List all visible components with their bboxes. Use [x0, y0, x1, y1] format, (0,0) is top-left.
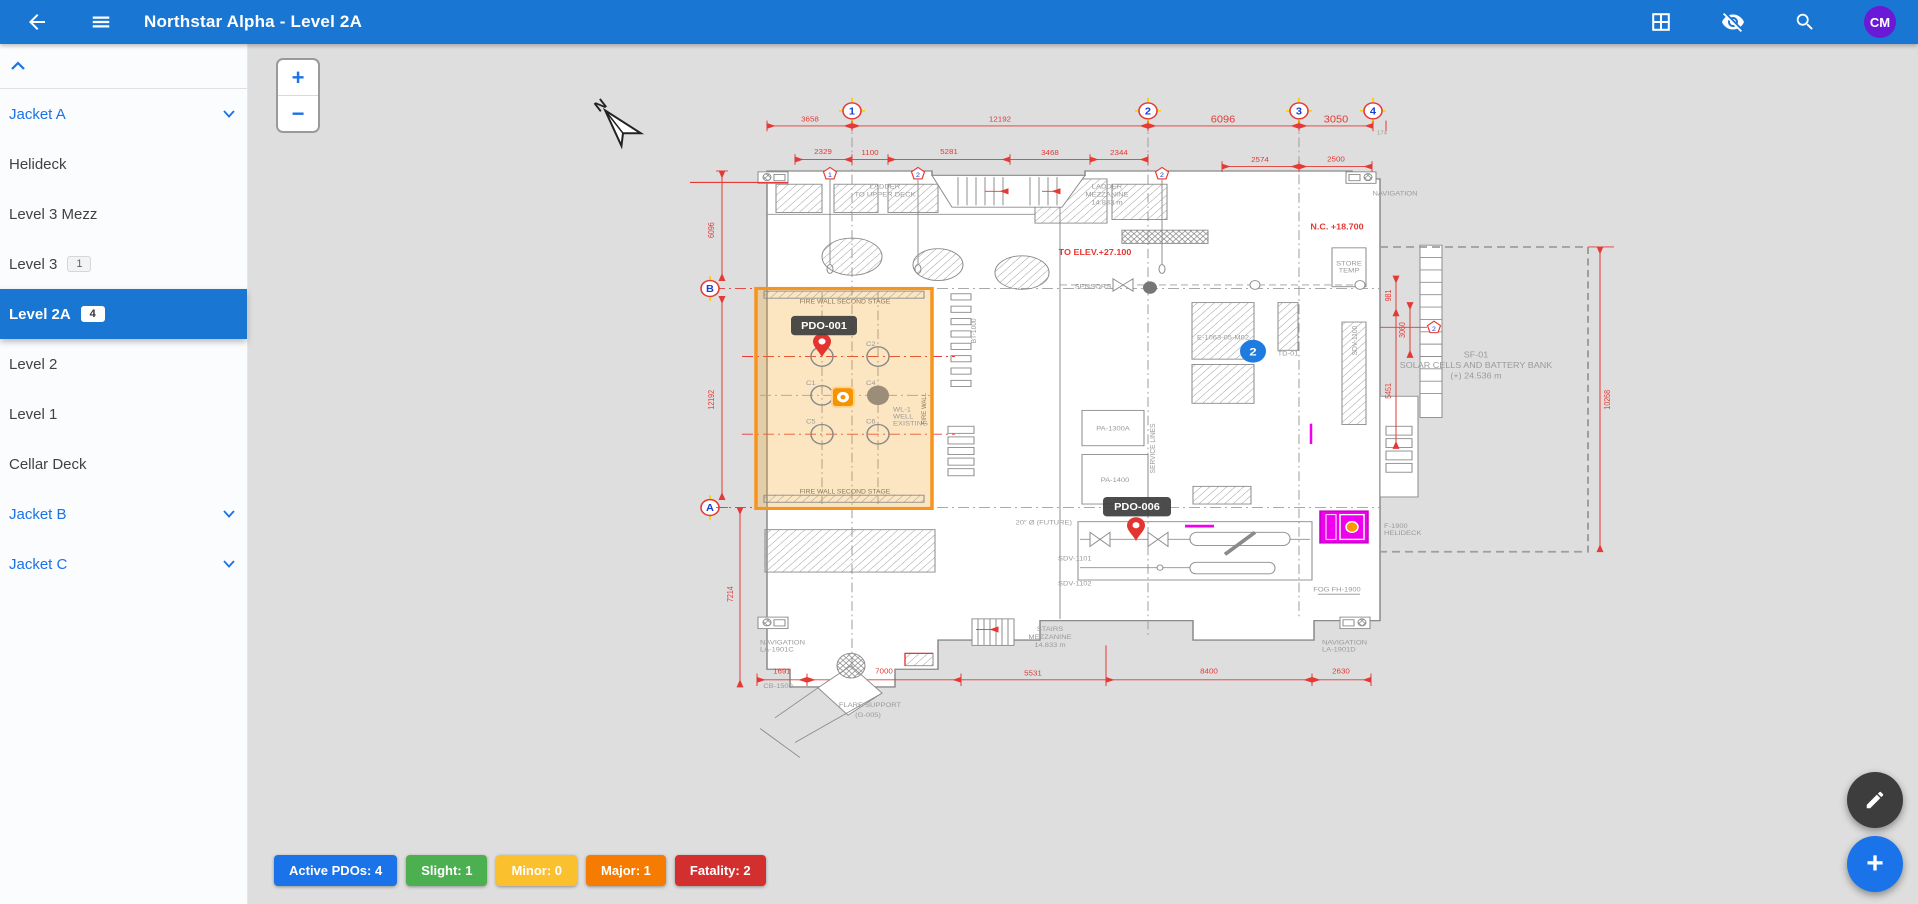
sidebar-item-label: Level 3: [9, 256, 57, 273]
svg-text:HELIDECK: HELIDECK: [1384, 530, 1422, 537]
svg-text:A: A: [706, 504, 714, 514]
grid-bubble-4: 4: [1360, 98, 1386, 125]
chip-major[interactable]: Major: 1: [586, 855, 666, 886]
sidebar-item-label: Level 3 Mezz: [9, 206, 97, 223]
sidebar-collapse-button[interactable]: [0, 44, 247, 88]
sidebar-item-label: Cellar Deck: [9, 456, 87, 473]
chip-minor[interactable]: Minor: 0: [496, 855, 577, 886]
search-button[interactable]: [1792, 9, 1818, 35]
table-view-button[interactable]: [1648, 9, 1674, 35]
edit-fab[interactable]: [1847, 772, 1903, 828]
status-chip-bar: Active PDOs: 4 Slight: 1 Minor: 0 Major:…: [274, 855, 766, 886]
svg-text:F-1900: F-1900: [1384, 523, 1408, 530]
equipment-label: PA-1400: [1101, 477, 1130, 484]
dim-label: 5281: [940, 148, 958, 156]
sidebar-item-label: Jacket B: [9, 506, 67, 523]
sidebar-item-label: Jacket A: [9, 106, 66, 123]
dim-label: 981: [1384, 290, 1394, 302]
svg-text:LADDER: LADDER: [1092, 184, 1122, 191]
svg-text:1: 1: [849, 107, 855, 117]
svg-text:2: 2: [1160, 172, 1164, 179]
zoom-out-button[interactable]: −: [278, 96, 318, 131]
pencil-icon: [1864, 789, 1886, 811]
toggle-visibility-button[interactable]: [1720, 9, 1746, 35]
svg-text:14.833 m: 14.833 m: [1091, 200, 1122, 207]
svg-text:1: 1: [828, 172, 832, 179]
hamburger-icon: [90, 11, 112, 33]
svg-text:2: 2: [916, 172, 920, 179]
navigation-light-box: [1340, 617, 1370, 628]
equipment-label: BT-1000: [971, 318, 978, 343]
svg-text:WL-1: WL-1: [893, 407, 911, 414]
chip-fatality[interactable]: Fatality: 2: [675, 855, 766, 886]
chip-active-pdos[interactable]: Active PDOs: 4: [274, 855, 397, 886]
equipment-label: E-1063-05-M02: [1197, 335, 1249, 342]
north-arrow: N: [580, 88, 650, 158]
dim-label: 3658: [801, 115, 819, 123]
sidebar-item-label: Jacket C: [9, 556, 67, 573]
svg-text:FOG FH-1900: FOG FH-1900: [1313, 587, 1360, 594]
navigation-light-box: [758, 617, 788, 628]
search-icon: [1794, 11, 1816, 33]
svg-text:C6: C6: [866, 419, 876, 426]
equipment-label: PA-1300A: [1096, 426, 1130, 433]
dim-label: 2574: [1251, 156, 1269, 164]
equipment-label: SDV-1102: [1058, 581, 1092, 588]
svg-text:2: 2: [1432, 326, 1436, 333]
grid-icon: [1650, 11, 1672, 33]
svg-text:FIRE WALL: FIRE WALL: [921, 392, 928, 424]
arrow-left-icon: [25, 10, 49, 34]
svg-text:LA-1901D: LA-1901D: [1322, 647, 1356, 654]
svg-text:FIRE WALL SECOND STAGE: FIRE WALL SECOND STAGE: [800, 489, 891, 496]
svg-text:FIRE WALL SECOND STAGE: FIRE WALL SECOND STAGE: [800, 299, 891, 306]
sidebar-item-cellar-deck[interactable]: Cellar Deck: [0, 439, 247, 489]
svg-text:STORE: STORE: [1336, 261, 1362, 268]
equipment-label: TD-01: [1278, 351, 1299, 358]
sidebar-item-label: Level 2A: [9, 306, 71, 323]
chevron-up-icon: [9, 59, 27, 73]
eye-off-icon: [1721, 10, 1745, 34]
dim-label: 1691: [773, 667, 791, 675]
svg-text:FLARE SUPPORT: FLARE SUPPORT: [839, 703, 902, 710]
zoom-in-button[interactable]: +: [278, 60, 318, 96]
levels-sidebar: Jacket A Helideck Level 3 Mezz Level 3 1…: [0, 44, 248, 904]
app-bar: Northstar Alpha - Level 2A CM: [0, 0, 1918, 44]
plus-icon: +: [1866, 847, 1884, 881]
svg-text:MEZZANINE: MEZZANINE: [1085, 192, 1129, 199]
svg-text:(G-005): (G-005): [855, 712, 881, 719]
svg-text:MEZZANINE: MEZZANINE: [1028, 635, 1072, 642]
chevron-down-icon: [223, 510, 235, 518]
page-title: Northstar Alpha - Level 2A: [144, 12, 362, 32]
dim-label: 3060: [1398, 322, 1408, 338]
menu-button[interactable]: [88, 9, 114, 35]
svg-text:2: 2: [1145, 107, 1151, 117]
stairs-top: [932, 175, 1085, 207]
equipment-label: SDV-1100: [1352, 326, 1359, 356]
stairs-bottom: [972, 619, 1014, 646]
svg-text:B: B: [706, 285, 714, 295]
sidebar-item-label: Level 1: [9, 406, 57, 423]
nc-note: N.C. +18.700: [1310, 222, 1364, 231]
svg-text:20″ Ø (FUTURE): 20″ Ø (FUTURE): [1016, 520, 1072, 527]
dim-label: 174: [1377, 131, 1387, 137]
dim-label: 5531: [1024, 669, 1042, 677]
sidebar-item-jacket-c[interactable]: Jacket C: [0, 539, 247, 589]
svg-text:C5: C5: [806, 419, 816, 426]
avatar[interactable]: CM: [1864, 6, 1896, 38]
sidebar-item-level-2a[interactable]: Level 2A 4: [0, 289, 247, 339]
svg-text:4: 4: [1370, 107, 1376, 117]
dim-label: 6096: [707, 222, 717, 238]
dim-label: 2630: [1332, 667, 1350, 675]
chevron-down-icon: [223, 560, 235, 568]
dim-label: 2500: [1327, 155, 1345, 163]
svg-text:LA-1901C: LA-1901C: [760, 647, 794, 654]
svg-text:EXISTING: EXISTING: [893, 421, 928, 428]
grid-bubble-3: 3: [1286, 98, 1312, 125]
sidebar-item-helideck[interactable]: Helideck: [0, 139, 247, 189]
sidebar-item-label: Level 2: [9, 356, 57, 373]
chevron-down-icon: [223, 110, 235, 118]
svg-text:(+) 24.536 m: (+) 24.536 m: [1450, 371, 1501, 380]
svg-text:14.833 m: 14.833 m: [1034, 642, 1065, 649]
dim-label: 10268: [1603, 390, 1613, 410]
navigation-light-box: [758, 172, 788, 183]
svg-text:LADDER: LADDER: [870, 184, 900, 191]
svg-text:TEMP: TEMP: [1339, 268, 1360, 275]
dim-label: 2344: [1110, 149, 1128, 157]
pdo-tooltip-label: PDO-006: [1114, 503, 1160, 513]
cluster-count: 2: [1249, 345, 1256, 358]
count-badge: 4: [81, 306, 105, 322]
zoom-control: + −: [276, 58, 320, 133]
sidebar-item-level-3-mezz[interactable]: Level 3 Mezz: [0, 189, 247, 239]
floor-plan-canvas[interactable]: 1 2 3 4 B A: [690, 95, 1630, 815]
svg-text:STAIRS: STAIRS: [1037, 627, 1064, 634]
dim-label: 12192: [707, 390, 717, 410]
svg-text:WELL: WELL: [893, 414, 913, 421]
sidebar-item-level-2[interactable]: Level 2: [0, 339, 247, 389]
svg-text:C2: C2: [866, 341, 876, 348]
pdo-minor-marker[interactable]: [832, 387, 854, 406]
dim-label: 3050: [1324, 115, 1349, 125]
svg-text:NAVIGATION: NAVIGATION: [1372, 191, 1417, 198]
count-badge: 1: [67, 256, 91, 272]
dim-label: 12192: [989, 115, 1011, 123]
chip-slight[interactable]: Slight: 1: [406, 855, 487, 886]
svg-text:SERVICE LINES: SERVICE LINES: [1150, 423, 1157, 473]
cluster-marker[interactable]: 2: [1240, 340, 1266, 363]
add-fab[interactable]: +: [1847, 836, 1903, 892]
sidebar-item-level-1[interactable]: Level 1: [0, 389, 247, 439]
sidebar-item-jacket-b[interactable]: Jacket B: [0, 489, 247, 539]
dim-label: 3468: [1041, 149, 1059, 157]
dim-label: 1100: [861, 149, 878, 157]
svg-text:SOLAR CELLS AND BATTERY BANK: SOLAR CELLS AND BATTERY BANK: [1400, 360, 1553, 369]
dim-label: 7214: [726, 586, 736, 602]
svg-text:NAVIGATION: NAVIGATION: [760, 640, 805, 647]
grid-bubble-B: B: [701, 276, 719, 301]
svg-text:NAVIGATION: NAVIGATION: [1322, 640, 1367, 647]
dim-label: 7000: [875, 667, 893, 675]
sidebar-item-level-3[interactable]: Level 3 1: [0, 239, 247, 289]
equipment-label: SDV-1101: [1058, 556, 1092, 563]
grid-bubble-2: 2: [1135, 98, 1161, 125]
svg-text:SF-01: SF-01: [1464, 350, 1489, 359]
svg-text:CB-1500: CB-1500: [763, 683, 793, 690]
dim-label: 5451: [1384, 383, 1394, 399]
svg-text:SENSORS: SENSORS: [1075, 284, 1112, 291]
grid-bubble-1: 1: [839, 98, 865, 125]
sidebar-item-label: Helideck: [9, 156, 67, 173]
svg-text:3: 3: [1296, 107, 1302, 117]
elevation-note: TO ELEV.+27.100: [1059, 247, 1132, 256]
sidebar-item-jacket-a[interactable]: Jacket A: [0, 89, 247, 139]
dim-label: 2329: [814, 148, 832, 156]
svg-text:TO UPPER DECK: TO UPPER DECK: [854, 192, 915, 199]
navigation-light-box: [1346, 172, 1376, 183]
svg-text:C1: C1: [806, 380, 816, 387]
dim-label: 8400: [1200, 667, 1218, 675]
svg-text:C4: C4: [866, 380, 876, 387]
pdo-tooltip-label: PDO-001: [801, 322, 847, 332]
dim-label: 6096: [1211, 115, 1236, 125]
back-button[interactable]: [24, 9, 50, 35]
